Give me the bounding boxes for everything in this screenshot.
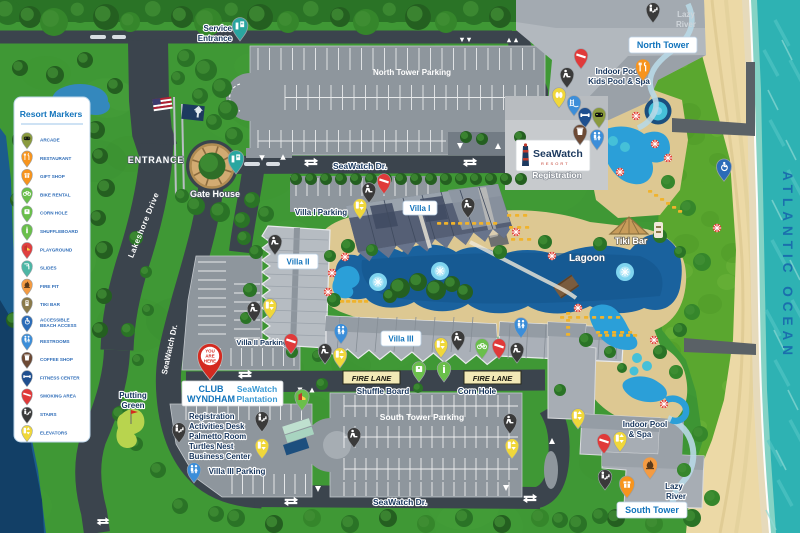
svg-text:Lazy: Lazy xyxy=(677,10,695,19)
svg-text:CLUB: CLUB xyxy=(199,384,224,394)
svg-text:Service: Service xyxy=(204,24,233,33)
svg-text:North Tower Parking: North Tower Parking xyxy=(373,68,451,77)
svg-text:South Tower Parking: South Tower Parking xyxy=(380,412,464,422)
svg-text:Plantation: Plantation xyxy=(236,394,277,404)
svg-text:Registration: Registration xyxy=(532,170,582,180)
svg-text:ENTRANCE: ENTRANCE xyxy=(128,155,184,165)
svg-text:Resort Markers: Resort Markers xyxy=(20,109,83,119)
svg-text:North Tower: North Tower xyxy=(637,40,690,50)
svg-text:RESTROOMS: RESTROOMS xyxy=(40,339,70,344)
svg-text:Gate House: Gate House xyxy=(190,189,240,199)
svg-text:SeaWatch: SeaWatch xyxy=(237,384,277,394)
svg-text:River: River xyxy=(676,20,696,29)
svg-text:Villa II: Villa II xyxy=(287,257,310,266)
svg-text:RESTAURANT: RESTAURANT xyxy=(40,156,71,161)
svg-text:SMOKING AREA: SMOKING AREA xyxy=(40,394,77,399)
svg-text:FITNESS CENTER: FITNESS CENTER xyxy=(40,375,80,380)
svg-text:Villa I: Villa I xyxy=(410,204,431,213)
svg-text:River: River xyxy=(666,492,686,501)
svg-text:Villa I Parking: Villa I Parking xyxy=(295,208,347,217)
svg-text:ACCESSIBLE: ACCESSIBLE xyxy=(40,318,70,323)
svg-text:Registration: Registration xyxy=(189,412,235,421)
svg-text:& Spa: & Spa xyxy=(629,430,652,439)
svg-text:Palmetto Room: Palmetto Room xyxy=(189,432,246,441)
svg-text:FIRE LANE: FIRE LANE xyxy=(352,374,393,383)
svg-text:TIKI BAR: TIKI BAR xyxy=(40,302,61,307)
svg-text:SeaWatch Dr.: SeaWatch Dr. xyxy=(333,161,387,171)
svg-text:FIRE PIT: FIRE PIT xyxy=(40,284,59,289)
svg-text:GIFT SHOP: GIFT SHOP xyxy=(40,174,65,179)
svg-text:Corn Hole: Corn Hole xyxy=(458,387,497,396)
svg-text:Tiki Bar: Tiki Bar xyxy=(615,236,648,246)
svg-text:Lazy: Lazy xyxy=(665,482,683,491)
svg-text:Business Center: Business Center xyxy=(189,452,251,461)
svg-text:WYNDHAM: WYNDHAM xyxy=(187,394,235,404)
svg-text:Activities Desk: Activities Desk xyxy=(189,422,245,431)
svg-text:ATLANTIC OCEAN: ATLANTIC OCEAN xyxy=(780,171,795,360)
svg-text:PLAYGROUND: PLAYGROUND xyxy=(40,247,73,252)
svg-text:Turtles Nest: Turtles Nest xyxy=(189,442,234,451)
svg-text:Green: Green xyxy=(121,401,144,410)
svg-text:ELEVATORS: ELEVATORS xyxy=(40,430,67,435)
svg-text:SLIDES: SLIDES xyxy=(40,266,57,271)
svg-text:COFFEE SHOP: COFFEE SHOP xyxy=(40,357,73,362)
svg-text:SeaWatch Dr.: SeaWatch Dr. xyxy=(373,497,427,507)
svg-text:BEACH ACCESS: BEACH ACCESS xyxy=(40,323,77,328)
svg-text:SeaWatch: SeaWatch xyxy=(533,148,583,160)
svg-text:ARCADE: ARCADE xyxy=(40,138,60,143)
svg-text:Indoor Pool: Indoor Pool xyxy=(623,420,667,429)
svg-text:SHUFFLEBOARD: SHUFFLEBOARD xyxy=(40,229,79,234)
svg-text:RESORT: RESORT xyxy=(541,161,570,166)
svg-text:HERE: HERE xyxy=(204,359,216,364)
svg-text:Entrance: Entrance xyxy=(198,34,233,43)
svg-text:South Tower: South Tower xyxy=(625,505,679,515)
svg-text:STAIRS: STAIRS xyxy=(40,412,57,417)
svg-text:Shuffle Board: Shuffle Board xyxy=(357,387,410,396)
svg-text:BIKE RENTAL: BIKE RENTAL xyxy=(40,192,71,197)
svg-text:Lagoon: Lagoon xyxy=(569,253,605,264)
svg-text:CORN HOLE: CORN HOLE xyxy=(40,211,68,216)
svg-text:Villa II Parking: Villa II Parking xyxy=(236,338,288,347)
svg-text:Villa III Parking: Villa III Parking xyxy=(209,467,266,476)
svg-text:Putting: Putting xyxy=(119,391,147,400)
svg-text:Villa III: Villa III xyxy=(388,334,413,343)
svg-text:FIRE LANE: FIRE LANE xyxy=(473,374,514,383)
